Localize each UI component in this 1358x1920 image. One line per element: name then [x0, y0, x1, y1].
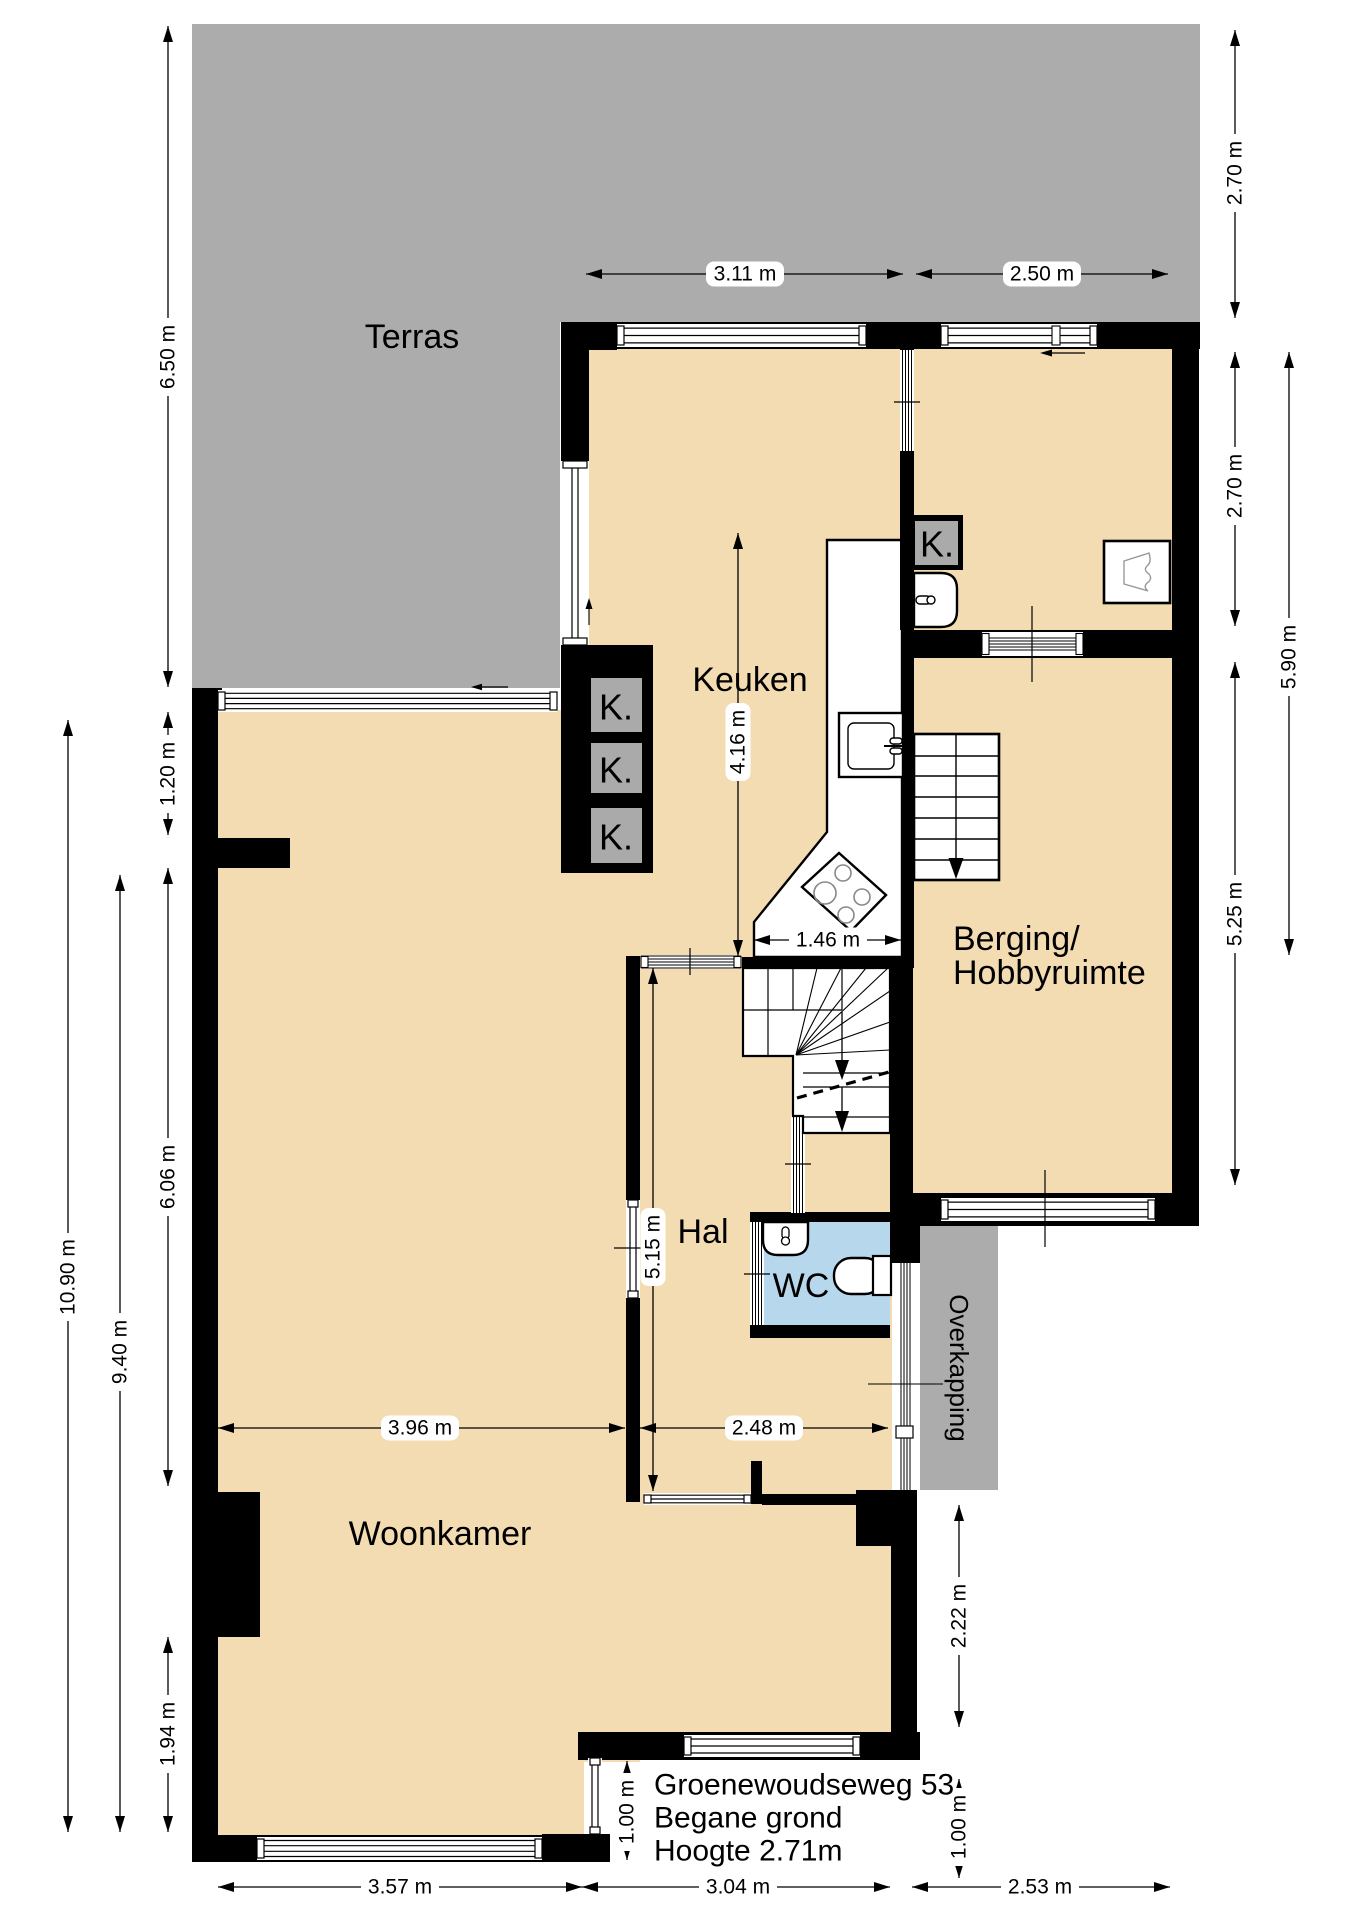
svg-text:Keuken: Keuken — [692, 661, 807, 699]
svg-text:Begane grond: Begane grond — [654, 1802, 843, 1835]
svg-text:WC: WC — [773, 1267, 830, 1305]
svg-text:1.46 m: 1.46 m — [796, 929, 860, 952]
svg-text:Terras: Terras — [365, 318, 459, 356]
svg-text:5.90 m: 5.90 m — [1278, 625, 1301, 689]
svg-text:2.53 m: 2.53 m — [1008, 1876, 1072, 1899]
svg-text:3.04 m: 3.04 m — [706, 1876, 770, 1899]
svg-text:Hal: Hal — [677, 1213, 728, 1251]
svg-text:Woonkamer: Woonkamer — [349, 1515, 532, 1553]
svg-text:K.: K. — [599, 750, 633, 791]
svg-text:10.90 m: 10.90 m — [57, 1239, 80, 1315]
svg-text:Groenewoudseweg 53: Groenewoudseweg 53 — [654, 1769, 954, 1802]
svg-text:Hoogte 2.71m: Hoogte 2.71m — [654, 1835, 842, 1868]
svg-text:K.: K. — [599, 687, 633, 728]
svg-text:K.: K. — [920, 524, 954, 565]
svg-text:K.: K. — [599, 817, 633, 858]
svg-text:6.50 m: 6.50 m — [157, 325, 180, 389]
svg-text:5.15 m: 5.15 m — [642, 1215, 665, 1279]
svg-text:Hobbyruimte: Hobbyruimte — [953, 954, 1146, 992]
svg-text:4.16 m: 4.16 m — [727, 710, 750, 774]
svg-text:Overkapping: Overkapping — [944, 1294, 974, 1441]
svg-text:2.22 m: 2.22 m — [948, 1584, 971, 1648]
svg-text:2.48 m: 2.48 m — [732, 1417, 796, 1440]
svg-text:2.70 m: 2.70 m — [1224, 454, 1247, 518]
svg-text:1.94 m: 1.94 m — [157, 1702, 180, 1766]
svg-text:1.00 m: 1.00 m — [616, 1780, 639, 1844]
svg-text:9.40 m: 9.40 m — [109, 1320, 132, 1384]
svg-text:5.25 m: 5.25 m — [1224, 882, 1247, 946]
svg-text:3.96 m: 3.96 m — [388, 1417, 452, 1440]
svg-text:3.11 m: 3.11 m — [714, 263, 777, 286]
svg-text:1.00 m: 1.00 m — [948, 1795, 971, 1859]
svg-text:Berging/: Berging/ — [953, 920, 1080, 958]
svg-text:6.06 m: 6.06 m — [157, 1145, 180, 1209]
svg-text:2.70 m: 2.70 m — [1224, 141, 1247, 205]
svg-text:1.20 m: 1.20 m — [157, 742, 180, 806]
svg-text:3.57 m: 3.57 m — [368, 1876, 432, 1899]
svg-text:2.50 m: 2.50 m — [1010, 263, 1074, 286]
